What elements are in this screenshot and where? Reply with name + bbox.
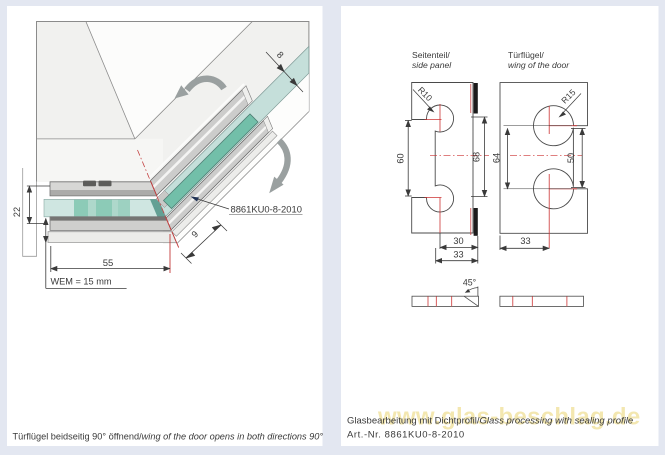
svg-text:33: 33 bbox=[520, 236, 530, 246]
svg-text:Türflügel beidseitig 90° öffne: Türflügel beidseitig 90° öffnend/wing of… bbox=[13, 432, 324, 442]
svg-text:45°: 45° bbox=[463, 278, 476, 288]
svg-text:Türflügel/: Türflügel/ bbox=[508, 50, 544, 60]
svg-text:30: 30 bbox=[453, 236, 463, 246]
svg-text:WEM = 15 mm: WEM = 15 mm bbox=[51, 277, 112, 287]
svg-text:64: 64 bbox=[492, 153, 502, 163]
svg-text:50: 50 bbox=[566, 153, 576, 163]
svg-text:Art.-Nr. 8861KU0-8-2010: Art.-Nr. 8861KU0-8-2010 bbox=[347, 430, 465, 441]
svg-text:55: 55 bbox=[103, 258, 114, 269]
svg-text:33: 33 bbox=[453, 250, 463, 260]
svg-text:68: 68 bbox=[472, 152, 482, 162]
svg-text:8861KU0-8-2010: 8861KU0-8-2010 bbox=[231, 204, 302, 215]
svg-text:Glasbearbeitung mit Dichtprofi: Glasbearbeitung mit Dichtprofil/Glass pr… bbox=[347, 416, 633, 427]
svg-text:side panel: side panel bbox=[412, 60, 452, 70]
svg-text:60: 60 bbox=[396, 153, 406, 163]
svg-text:wing of the door: wing of the door bbox=[508, 60, 570, 70]
svg-text:22: 22 bbox=[12, 207, 22, 217]
svg-text:Seitenteil/: Seitenteil/ bbox=[412, 50, 450, 60]
